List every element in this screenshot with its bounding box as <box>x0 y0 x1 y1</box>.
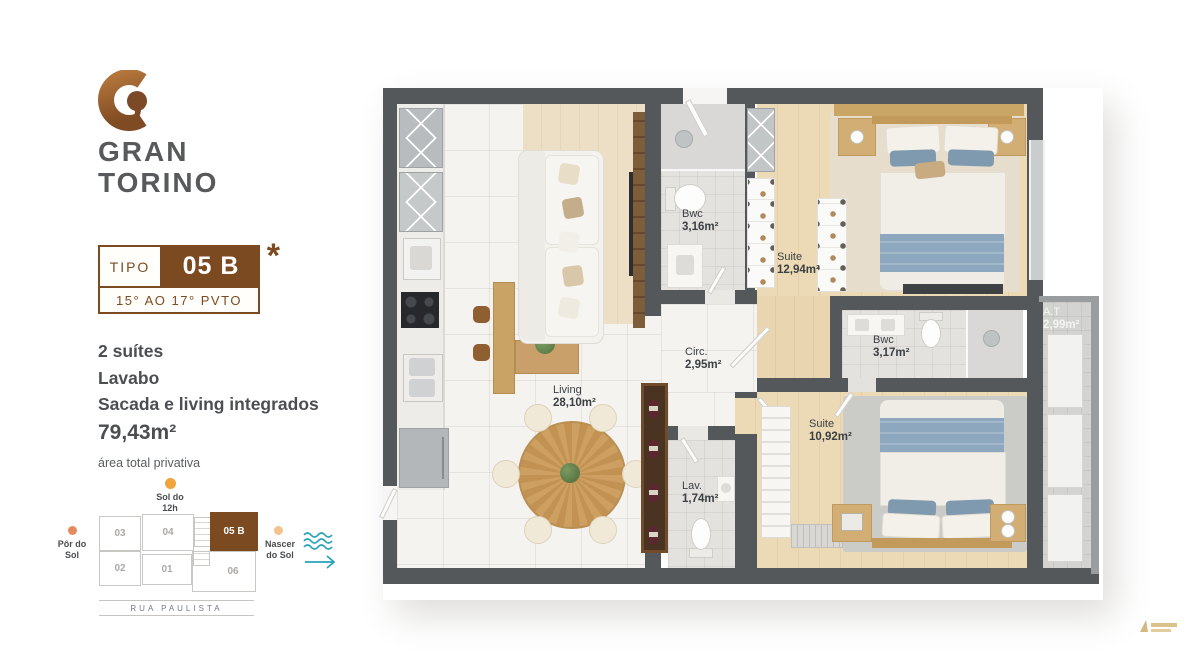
wall-bwc2-left <box>830 310 842 378</box>
pillow-blue <box>948 149 995 167</box>
sunrise-icon <box>274 526 283 535</box>
street-line <box>99 600 254 601</box>
suite2-nightstand <box>832 504 872 542</box>
suite1-bed-blanket <box>880 234 1004 274</box>
suite1-bed-sheet <box>880 172 1006 238</box>
kitchen-glass-cabinet <box>399 108 443 168</box>
sunset-icon <box>68 526 77 535</box>
tv-panel <box>633 112 645 328</box>
throw-pillow <box>558 231 580 253</box>
sun-noon-label: Sol do 12h <box>145 492 195 513</box>
kitchen-island <box>493 282 515 394</box>
at-equipment-panel <box>1047 494 1083 562</box>
tv <box>629 172 633 276</box>
bwc2-toilet <box>921 319 941 348</box>
keyplate-unit-04: 04 <box>142 514 194 551</box>
bar-stool <box>473 344 490 361</box>
page: GRAN TORINO TIPO 05 B * 15° AO 17° PVTO … <box>0 0 1191 669</box>
badge-unit-number: 05 B <box>162 245 260 288</box>
room-label-suite1: Suite 12,94m² <box>777 251 820 277</box>
table-centerpiece <box>560 463 580 483</box>
suite1-nightstand <box>838 118 876 156</box>
lav-sink <box>717 476 735 502</box>
keyplate-elevator <box>193 551 210 566</box>
keyplate-unit-05b-highlighted: 05 B <box>210 512 258 551</box>
bwc1-shower-glass <box>661 169 745 171</box>
refrigerator <box>399 428 449 488</box>
wine-bottle <box>649 484 658 502</box>
keyplate-unit-02: 02 <box>99 551 141 586</box>
feature-list: 2 suítes Lavabo Sacada e living integrad… <box>98 338 319 477</box>
unit-type-badge: TIPO 05 B * 15° AO 17° PVTO <box>98 245 260 314</box>
dining-chair <box>524 404 552 432</box>
dining-chair <box>524 516 552 544</box>
suite2-wardrobe <box>761 406 791 538</box>
wall-living-divider <box>645 104 661 316</box>
wine-bottle <box>649 526 658 544</box>
feature-item: Lavabo <box>98 365 319 392</box>
throw-pillow <box>561 196 584 219</box>
badge-tipo-label: TIPO <box>98 245 162 288</box>
pillow <box>881 512 940 539</box>
wine-bottle <box>649 440 658 458</box>
decor-icon <box>1001 524 1015 538</box>
badge-asterisk: * <box>267 237 280 276</box>
badge-row-type: TIPO 05 B * <box>98 245 260 288</box>
sunset-label: Pôr do Sol <box>48 539 96 560</box>
suite2-bed-sheet <box>880 452 1006 506</box>
floor-plan: Bwc 3,16m² Suite 12,94m² Circ. 2,95m² Bw… <box>383 88 1103 600</box>
wall-suite1-bwc2 <box>830 296 1027 310</box>
bwc1-shower-head <box>675 130 693 148</box>
shoe-shelf <box>747 178 775 288</box>
watermark-logo <box>1136 616 1180 636</box>
bwc2-shower-head <box>983 330 1000 347</box>
bwc2-door-opening <box>848 378 876 392</box>
wall-at-right <box>1091 296 1099 574</box>
brand-name: GRAN TORINO <box>98 136 218 198</box>
room-label-lav: Lav. 1,74m² <box>682 480 718 506</box>
lamp-icon <box>1000 130 1014 144</box>
bwc1-vanity <box>667 244 703 288</box>
keyplate-unit-03: 03 <box>99 516 141 551</box>
room-label-suite2: Suite 10,92m² <box>809 418 852 444</box>
room-label-at: A.T 2,99m² <box>1043 306 1079 332</box>
sun-noon-icon <box>165 478 176 489</box>
brand-line1: GRAN <box>98 136 218 167</box>
lav-toilet <box>691 518 711 550</box>
pillow-accent <box>914 160 946 179</box>
keyplate-unit-01: 01 <box>142 554 192 585</box>
lamp-icon <box>850 130 864 144</box>
building-keyplate: Sol do 12h Pôr do Sol Nascer do Sol 03 0… <box>40 470 340 635</box>
room-label-bwc1: Bwc 3,16m² <box>682 208 718 234</box>
at-equipment-panel <box>1047 414 1083 488</box>
at-equipment-panel <box>1047 334 1083 408</box>
wall-bottom <box>383 568 1099 584</box>
dining-chair <box>492 460 520 488</box>
shoe-shelf <box>817 198 847 292</box>
feature-item: 2 suítes <box>98 338 319 365</box>
decor-icon <box>1001 510 1015 524</box>
bwc2-vanity <box>847 314 905 336</box>
badge-floors: 15° AO 17° PVTO <box>98 286 260 314</box>
wine-bottle <box>649 400 658 418</box>
throw-pillow <box>558 163 581 186</box>
suite2-door-opening <box>735 398 757 434</box>
brand-line2: TORINO <box>98 167 218 198</box>
suite2-bed-blanket <box>880 418 1004 454</box>
bar-stool <box>473 306 490 323</box>
sunrise-label: Nascer do Sol <box>254 539 306 560</box>
room-label-circ: Circ. 2,95m² <box>685 346 721 372</box>
dining-chair <box>589 516 617 544</box>
street-name: RUA PAULISTA <box>99 604 254 613</box>
kitchen-bar-sink <box>403 238 441 280</box>
keyplate-stairs <box>194 517 211 547</box>
suite1-headboard <box>872 116 1012 124</box>
suite2-nightstand <box>990 504 1026 542</box>
room-label-bwc2: Bwc 3,17m² <box>873 334 909 360</box>
throw-pillow <box>557 296 580 319</box>
room-label-living: Living 28,10m² <box>553 384 596 410</box>
suite2-bed-foot <box>880 400 1004 420</box>
gran-torino-logo-icon <box>97 70 157 136</box>
cooktop <box>401 292 439 328</box>
wall-stub <box>645 553 661 568</box>
kitchen-double-sink <box>403 354 443 402</box>
suite1-headboard-niche <box>834 104 1024 116</box>
street-line <box>99 615 254 616</box>
bwc2-shower-glass <box>966 310 968 378</box>
suite1-window <box>1029 140 1045 280</box>
linen-closet <box>747 108 775 172</box>
wall-at-top <box>1039 296 1097 302</box>
suite1-dresser <box>903 284 1003 294</box>
wall-bwc1-bottom <box>645 290 757 304</box>
wall-bwc2-suite2 <box>757 378 1027 392</box>
kitchen-pantry-shelves <box>399 172 443 232</box>
throw-pillow <box>562 265 585 288</box>
picture-frame <box>841 513 863 531</box>
total-area: 79,43m² <box>98 420 319 447</box>
sea-waves-arrow-icon <box>302 530 338 572</box>
feature-item: Sacada e living integrados <box>98 391 319 418</box>
